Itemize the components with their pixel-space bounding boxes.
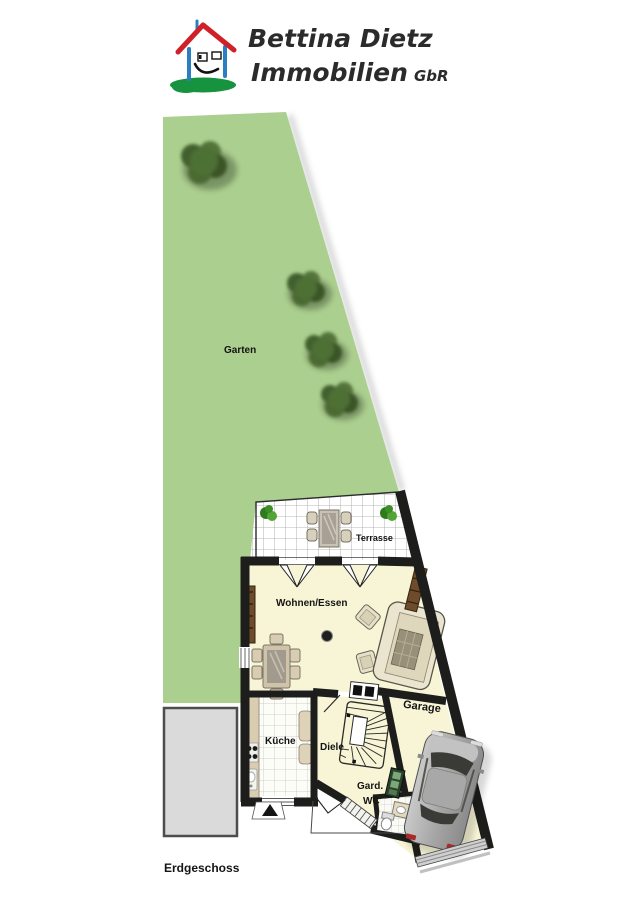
logo-eye <box>212 52 221 59</box>
driveway-pad <box>164 708 237 836</box>
house-logo-icon <box>170 21 236 93</box>
kitchen-cupboard <box>299 744 312 764</box>
brand-suffix: GbR <box>414 67 449 85</box>
brand-name: Bettina Dietz <box>248 26 433 51</box>
chimney <box>349 682 379 701</box>
wardrobe-label: Gard. <box>357 781 383 792</box>
entrance-arrow-icon <box>252 802 285 819</box>
floor-label: Erdgeschoss <box>164 861 239 875</box>
hallway-label: Diele <box>320 742 344 753</box>
kitchen-cupboard <box>299 711 312 741</box>
kitchen-label: Küche <box>265 736 296 747</box>
brand-business-word: Immobilien <box>251 58 408 87</box>
living-label: Wohnen/Essen <box>276 598 348 609</box>
brand-business: ImmobilienGbR <box>251 60 449 85</box>
floorplan-page: Bettina Dietz ImmobilienGbR Garten Terra… <box>0 0 636 900</box>
wc-label: WC <box>363 796 380 807</box>
staircase <box>339 701 391 769</box>
terrace-label: Terrasse <box>356 533 393 543</box>
logo-smile <box>195 64 218 73</box>
garden-label: Garten <box>224 345 256 356</box>
side-table <box>322 631 333 642</box>
floor-plan-svg <box>0 0 636 900</box>
